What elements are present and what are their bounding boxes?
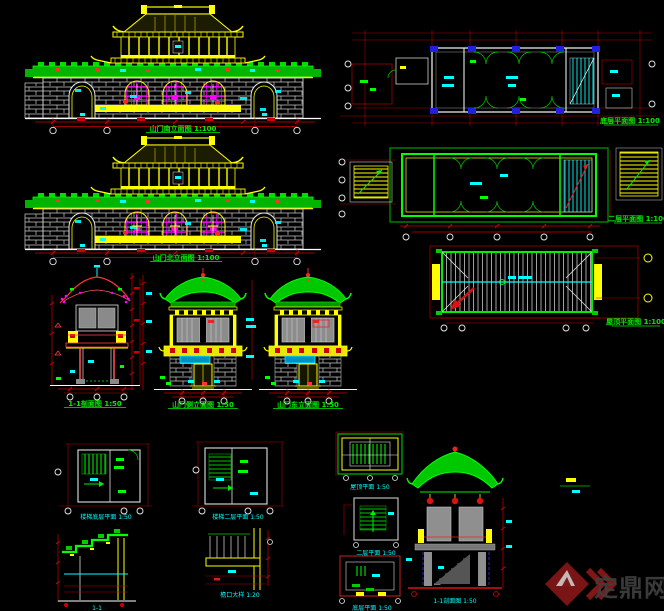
- view-label-rear-elevation: 山门北立面图 1:100: [153, 253, 220, 262]
- side-elevation-a-drawing: 山门侧立面图 1:50: [154, 268, 252, 409]
- view-label-roof-plan: 屋顶平面图 1:100: [606, 317, 664, 326]
- view-label-first-floor-plan: 底层平面图 1:100: [600, 116, 660, 125]
- kiosk-ground-plan-drawing: 底层平面 1:50: [340, 556, 401, 611]
- view-label-kiosk-ground-plan: 底层平面 1:50: [352, 604, 392, 611]
- view-label-stair-plan-lower: 楼梯底层平面 1:50: [80, 513, 132, 521]
- eave-detail-drawing: 檐口大样 1:20: [206, 528, 273, 599]
- second-floor-plan-drawing: 二层平面图 1:100: [339, 148, 664, 240]
- kiosk-section-drawing: 1-1剖面图 1:50: [406, 447, 512, 606]
- rear-elevation-drawing: 山门北立面图 1:100: [25, 136, 321, 265]
- watermark-text: 定鼎网: [594, 574, 664, 602]
- side-elevation-b-drawing: 山门东立面图 1:50: [259, 268, 357, 409]
- view-label-parapet-section: 1-1: [92, 605, 102, 611]
- view-label-side-elevation-b: 山门东立面图 1:50: [277, 400, 339, 409]
- view-label-eave-detail: 檐口大样 1:20: [220, 591, 260, 599]
- view-label-stair-plan-upper: 楼梯二层平面 1:50: [212, 513, 264, 521]
- kiosk-upper-plan-drawing: 二层平面 1:50: [344, 498, 399, 557]
- view-label-section-1-1: 1-1剖面图 1:50: [68, 399, 122, 408]
- watermark: 定鼎网: [545, 562, 664, 606]
- view-label-second-floor-plan: 二层平面图 1:100: [608, 214, 664, 223]
- section-1-1-drawing: 1-1剖面图 1:50: [50, 265, 140, 408]
- parapet-section-drawing: 1-1: [56, 529, 136, 611]
- detail-callout-marks: [560, 478, 590, 493]
- cad-canvas: 山门南立面图 1:100 山门北立面图 1:100 1-1剖面图 1:50 山门…: [0, 0, 664, 611]
- view-label-front-elevation: 山门南立面图 1:100: [150, 124, 217, 133]
- kiosk-roof-plan-drawing: 屋顶平面 1:50: [336, 432, 404, 491]
- first-floor-plan-drawing: 底层平面图 1:100: [340, 30, 660, 126]
- front-elevation-drawing: 山门南立面图 1:100: [25, 5, 321, 134]
- view-label-kiosk-roof-plan: 屋顶平面 1:50: [350, 484, 390, 491]
- roof-plan-drawing: 屋顶平面图 1:100: [430, 246, 664, 331]
- view-label-kiosk-section: 1-1剖面图 1:50: [433, 597, 476, 605]
- cad-sheet: 山门南立面图 1:100 山门北立面图 1:100 1-1剖面图 1:50 山门…: [0, 0, 664, 611]
- stair-plan-lower-drawing: 楼梯底层平面 1:50: [55, 444, 152, 521]
- view-label-side-elevation-a: 山门侧立面图 1:50: [172, 400, 234, 409]
- stair-plan-upper-drawing: 楼梯二层平面 1:50: [192, 442, 284, 521]
